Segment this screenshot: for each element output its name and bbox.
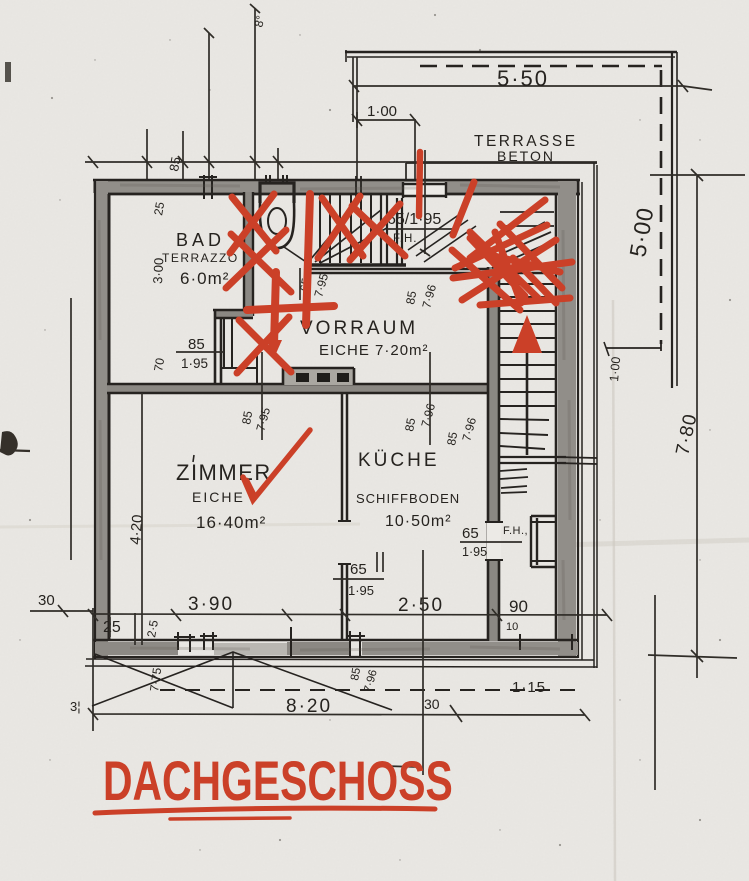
svg-text:85: 85 <box>402 417 418 433</box>
svg-text:3¦: 3¦ <box>70 699 81 714</box>
svg-text:5·50: 5·50 <box>497 66 549 91</box>
svg-text:3·90: 3·90 <box>188 594 234 615</box>
svg-text:70: 70 <box>151 357 167 373</box>
svg-text:1·00: 1·00 <box>607 356 623 382</box>
svg-text:8·20: 8·20 <box>286 696 332 717</box>
svg-text:85: 85 <box>444 431 460 447</box>
svg-text:65: 65 <box>350 561 367 578</box>
svg-text:85: 85 <box>349 667 363 682</box>
svg-text:85: 85 <box>188 336 205 353</box>
svg-text:4·20: 4·20 <box>127 514 147 545</box>
svg-text:SCHIFFBODEN: SCHIFFBODEN <box>356 491 460 506</box>
svg-text:16·40m²: 16·40m² <box>196 513 266 532</box>
svg-text:DACHGESCHOSS: DACHGESCHOSS <box>103 751 453 813</box>
svg-text:30: 30 <box>38 592 55 609</box>
svg-text:KÜCHE: KÜCHE <box>358 450 440 471</box>
svg-text:90: 90 <box>509 597 528 616</box>
svg-text:85: 85 <box>239 410 255 426</box>
svg-text:EICHE 7·20m²: EICHE 7·20m² <box>319 342 429 359</box>
svg-text:6·0m²: 6·0m² <box>180 269 229 288</box>
svg-text:F.H.,: F.H., <box>503 525 528 537</box>
svg-text:EICHE: EICHE <box>192 489 245 505</box>
svg-text:1·15: 1·15 <box>512 679 546 696</box>
svg-text:ZIMMER: ZIMMER <box>176 460 272 485</box>
svg-text:1·00: 1·00 <box>367 103 397 120</box>
svg-text:F.H.: F.H. <box>393 233 417 245</box>
svg-text:25: 25 <box>103 619 121 636</box>
svg-text:85: 85 <box>166 156 183 173</box>
svg-text:30: 30 <box>424 696 440 712</box>
svg-text:VORRAUM: VORRAUM <box>300 318 418 339</box>
svg-text:65: 65 <box>462 525 479 542</box>
svg-text:1·95: 1·95 <box>181 356 208 371</box>
svg-text:10·50m²: 10·50m² <box>385 513 452 530</box>
svg-text:85: 85 <box>403 290 419 306</box>
svg-text:10: 10 <box>506 621 518 633</box>
svg-text:BAD: BAD <box>176 230 225 250</box>
svg-text:1·95: 1·95 <box>462 545 487 559</box>
svg-text:25: 25 <box>151 201 167 217</box>
svg-text:1·95: 1·95 <box>348 583 374 598</box>
svg-text:2·50: 2·50 <box>398 595 444 616</box>
